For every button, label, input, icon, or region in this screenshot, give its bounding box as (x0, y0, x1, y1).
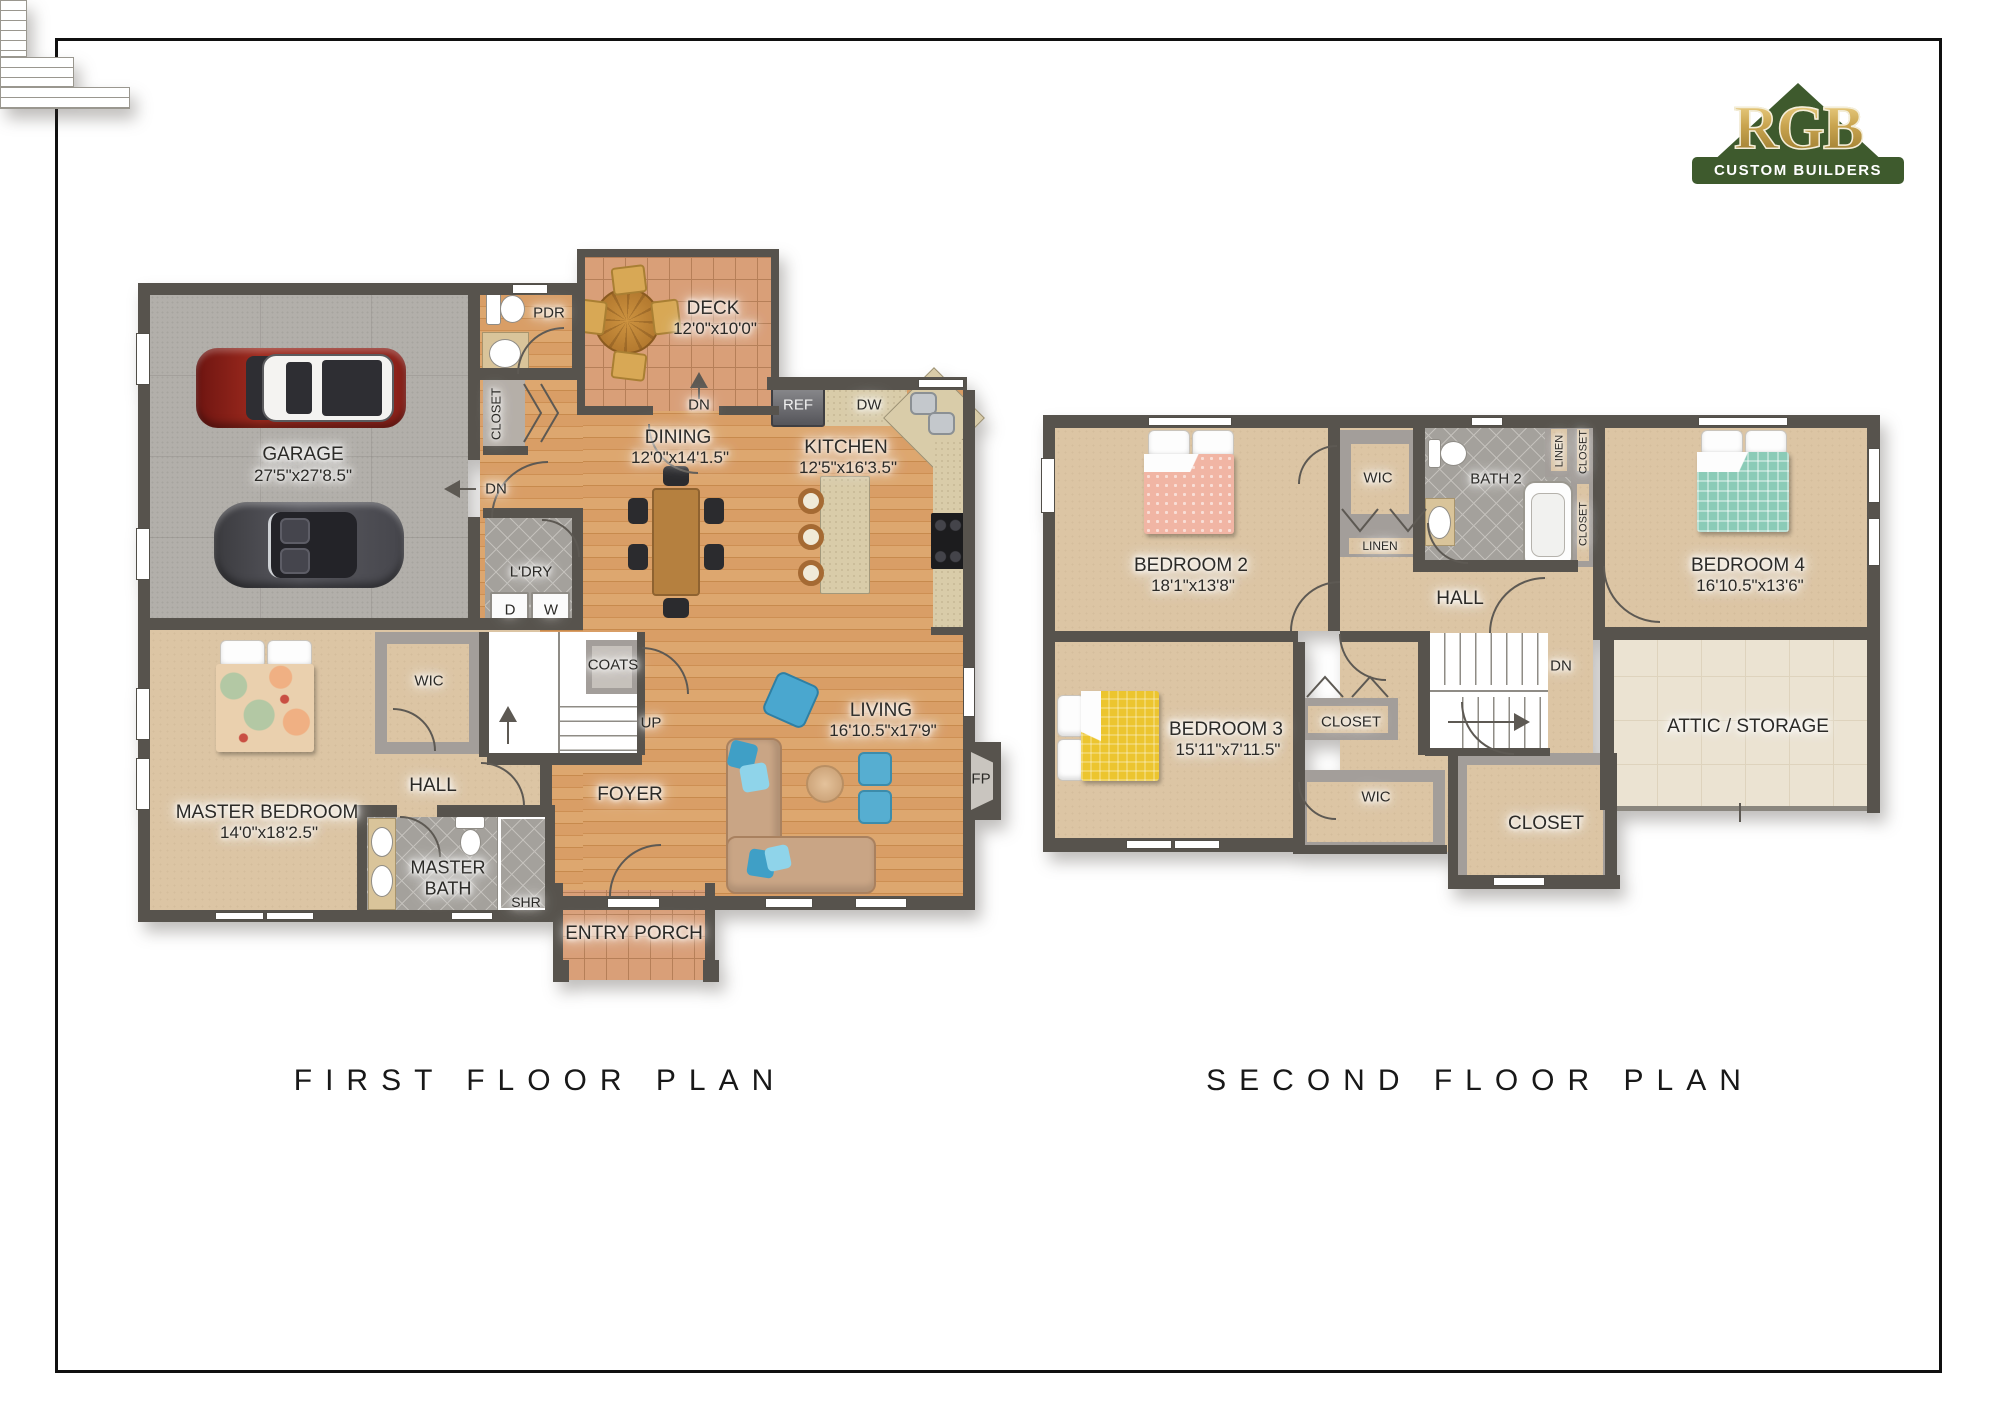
coats-label: COATS (588, 656, 639, 673)
linen-hall-label: LINEN (1362, 540, 1397, 554)
first-floor-title: FIRST FLOOR PLAN (294, 1064, 787, 1098)
garage-label: GARAGE (262, 444, 343, 466)
wic-bedroom3-label: WIC (1361, 788, 1390, 805)
living-dims: 16'10.5"x17'9" (829, 721, 936, 741)
bedroom2-label: BEDROOM 2 (1134, 555, 1248, 577)
hall2-label: HALL (1436, 588, 1484, 610)
labels-layer: GARAGE 27'5"x27'8.5" PDR CLOSET DN L'DRY… (0, 0, 2000, 1414)
bath2-label: BATH 2 (1470, 470, 1521, 487)
dining-dims: 12'0"x14'1.5" (631, 448, 729, 468)
deck-dims: 12'0"x10'0" (673, 319, 757, 339)
dn-deck-label: DN (688, 396, 710, 413)
washer-label: W (544, 601, 558, 618)
bedroom4-dims: 16'10.5"x13'6" (1696, 576, 1803, 596)
laundry-label: L'DRY (510, 563, 553, 580)
garage-dims: 27'5"x27'8.5" (254, 466, 352, 486)
master-bedroom-label: MASTER BEDROOM (176, 802, 359, 824)
kitchen-label: KITCHEN (804, 437, 887, 459)
bedroom3-dims: 15'11"x7'11.5" (1176, 740, 1281, 760)
dn-garage-label: DN (485, 480, 507, 497)
dishwasher-label: DW (857, 396, 882, 413)
fridge-label: REF (783, 396, 813, 413)
hall-label: HALL (409, 775, 457, 797)
dn-label: DN (1550, 657, 1572, 674)
closet-lower-label: CLOSET (1578, 502, 1591, 546)
dryer-label: D (505, 601, 516, 618)
second-floor-title: SECOND FLOOR PLAN (1206, 1064, 1754, 1098)
closet-label: CLOSET (490, 388, 505, 440)
foyer-label: FOYER (597, 784, 662, 806)
fireplace-label: FP (971, 770, 990, 787)
shower-label: SHR (511, 894, 541, 910)
dining-label: DINING (645, 427, 712, 449)
living-label: LIVING (850, 700, 912, 722)
bedroom3-label: BEDROOM 3 (1169, 719, 1283, 741)
closet-upper-label: CLOSET (1578, 430, 1591, 474)
bedroom2-dims: 18'1"x13'8" (1151, 576, 1235, 596)
wic-bedroom2-label: WIC (1363, 469, 1392, 486)
entry-porch-label: ENTRY PORCH (565, 923, 703, 945)
bedroom4-label: BEDROOM 4 (1691, 555, 1805, 577)
closet-hall-label: CLOSET (1508, 813, 1584, 835)
attic-label: ATTIC / STORAGE (1667, 716, 1829, 738)
up-label: UP (641, 714, 662, 731)
closet-bedroom3-label: CLOSET (1321, 713, 1381, 730)
kitchen-dims: 12'5"x16'3.5" (799, 458, 897, 478)
linen-bath-label: LINEN (1554, 435, 1567, 467)
wic-label: WIC (414, 672, 443, 689)
master-bedroom-dims: 14'0"x18'2.5" (220, 823, 318, 843)
master-bath-label: MASTER BATH (392, 857, 504, 898)
deck-label: DECK (687, 298, 740, 320)
pdr-label: PDR (533, 304, 565, 321)
